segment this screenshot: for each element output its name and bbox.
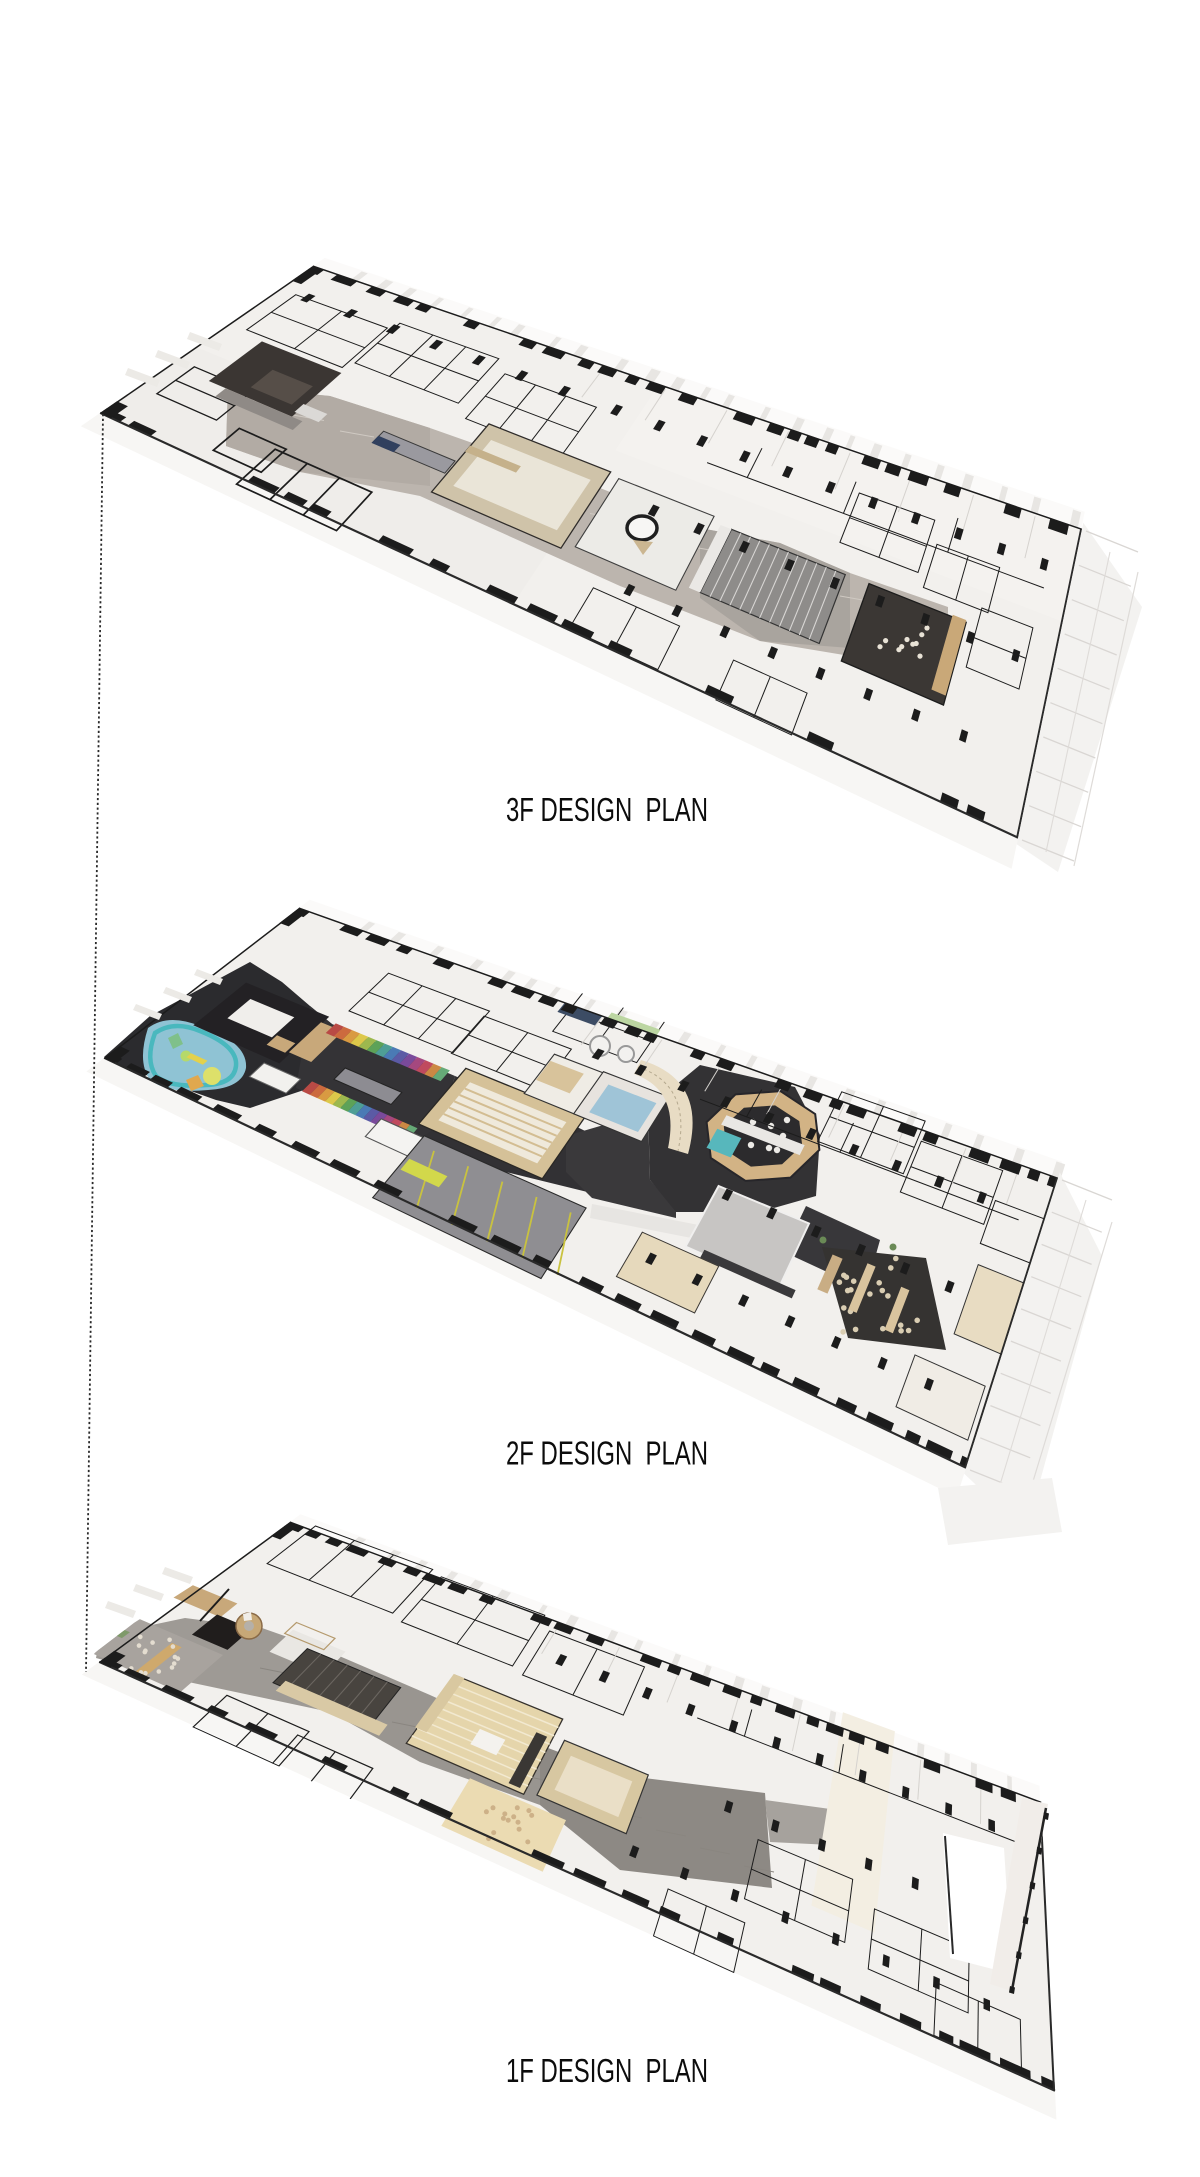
svg-text:1F DESIGN PLAN: 1F DESIGN PLAN (506, 2052, 708, 2089)
svg-text:2F DESIGN PLAN: 2F DESIGN PLAN (506, 1435, 708, 1472)
svg-text:3F DESIGN PLAN: 3F DESIGN PLAN (506, 791, 708, 828)
